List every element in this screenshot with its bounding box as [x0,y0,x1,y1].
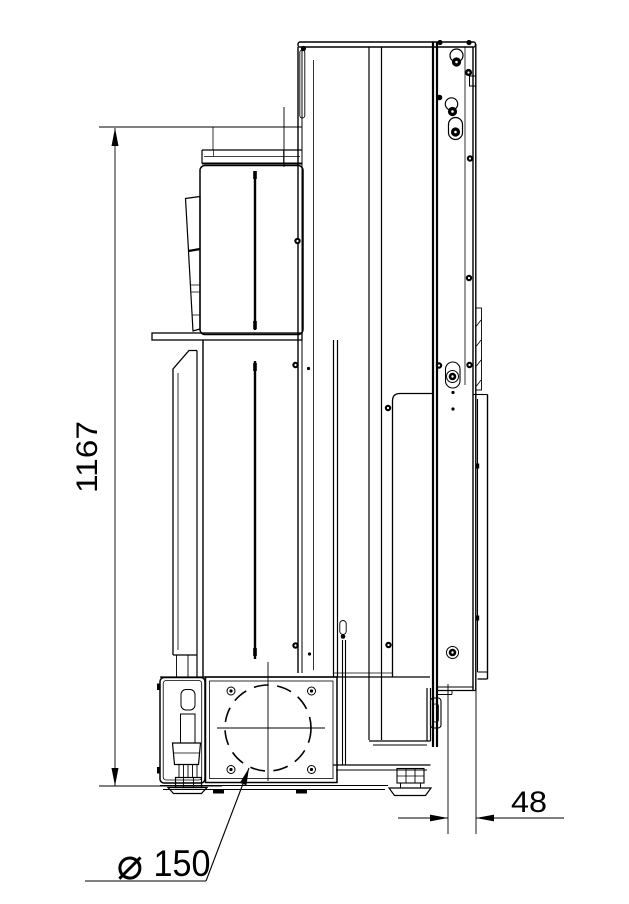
arrowhead-left-icon [476,815,494,822]
handle-lever-upper [186,197,201,251]
diameter-symbol: ⌀ [117,839,144,890]
technical-drawing-page: 1167 48 ⌀ 150 [0,0,629,904]
arrowhead-right-icon [430,815,448,822]
unit-outline [152,40,488,796]
screw-icon [437,95,443,101]
base-and-rear-foot [160,698,441,796]
side-view-drawing: 1167 48 ⌀ 150 [0,0,629,904]
thermowell [340,621,346,635]
top-plate [202,107,302,167]
panel-screws [292,155,473,655]
threaded-shaft [179,765,197,778]
arrowhead-up-icon [112,128,119,146]
side-compartment [157,678,207,794]
screw-icon [292,155,473,648]
lower-front-body [160,340,431,770]
mounting-bracket-hardware [437,49,476,659]
handle-lever-lower [189,250,201,332]
fan-outlet-assembly [206,662,338,783]
back-column [298,40,476,747]
foot-pad [168,788,207,794]
diameter-value-label: 150 [154,843,211,884]
upper-door-box [200,166,303,335]
dimension-rear-offset-label: 48 [511,786,547,819]
dimension-rear-offset-48: 48 [398,684,564,834]
arrowhead-down-icon [112,768,119,786]
adjuster-shaft [181,714,196,743]
vent-slot [181,690,195,711]
dimension-height-label: 1167 [71,421,104,493]
rear-foot-pad [389,788,431,796]
leader-line [206,768,249,881]
door-handles [186,197,201,332]
